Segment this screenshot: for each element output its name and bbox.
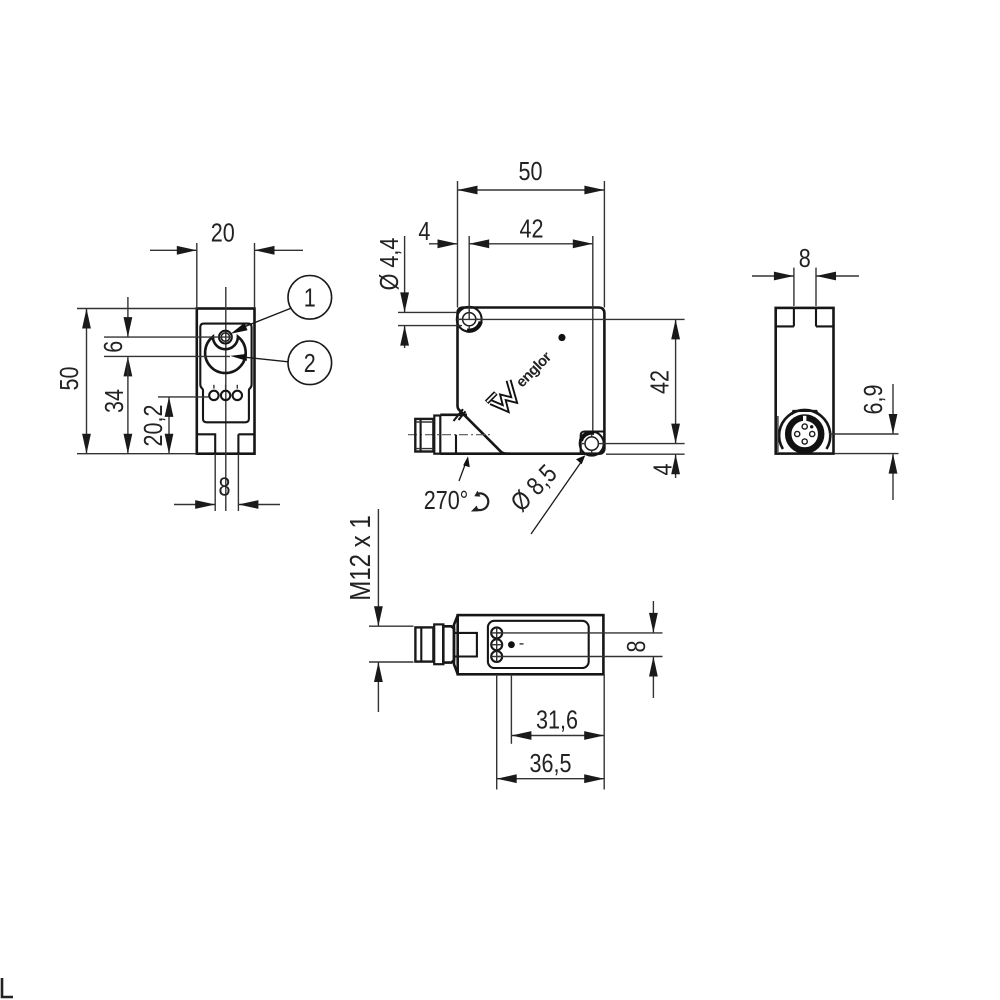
svg-text:42: 42: [646, 370, 675, 394]
svg-text:36,5: 36,5: [530, 749, 572, 778]
svg-text:50: 50: [519, 157, 543, 186]
svg-text:6: 6: [99, 341, 128, 353]
svg-text:4: 4: [418, 217, 430, 246]
svg-text:M12 x 1: M12 x 1: [344, 515, 377, 601]
svg-text:20,2: 20,2: [139, 405, 168, 447]
svg-text:20: 20: [211, 219, 235, 248]
svg-text:31,6: 31,6: [536, 706, 578, 735]
svg-text:34: 34: [100, 389, 129, 413]
svg-text:4: 4: [649, 464, 678, 476]
svg-text:8: 8: [799, 244, 811, 273]
svg-text:8: 8: [219, 473, 231, 502]
svg-text:8: 8: [622, 641, 651, 653]
svg-text:270°: 270°: [424, 486, 469, 515]
svg-text:50: 50: [55, 367, 84, 391]
svg-text:42: 42: [520, 215, 544, 244]
svg-text:1: 1: [304, 284, 316, 313]
svg-text:2: 2: [304, 349, 316, 378]
svg-text:Ø 4,4: Ø 4,4: [375, 238, 404, 291]
svg-text:6,9: 6,9: [859, 385, 888, 415]
